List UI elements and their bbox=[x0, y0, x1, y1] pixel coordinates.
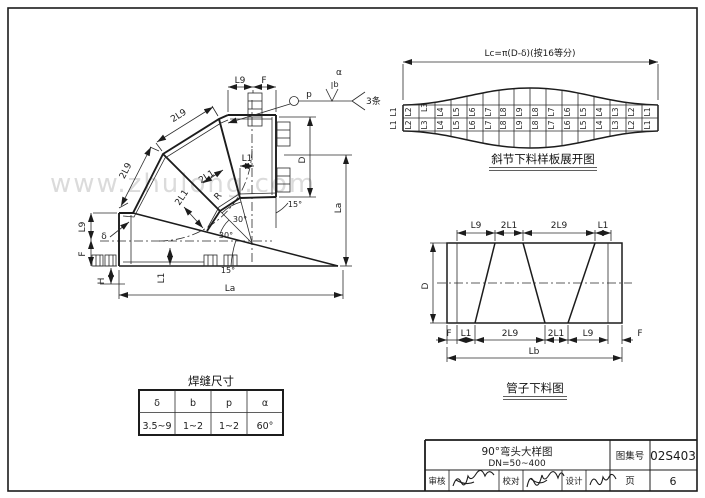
dev-label: L7 bbox=[484, 120, 493, 129]
dev-label: L9 bbox=[515, 120, 524, 129]
dim-l9-top: L9 bbox=[235, 76, 246, 86]
drawing-subtitle: DN=50~400 bbox=[488, 459, 546, 469]
dev-label: L4 bbox=[595, 120, 604, 129]
dev-label: L5 bbox=[579, 120, 588, 129]
dev-label: L4 bbox=[436, 107, 445, 116]
title-block: 90°弯头大样图 DN=50~400 图集号 02S403 审核 校对 设计 页… bbox=[425, 440, 697, 491]
blank-dim: F bbox=[637, 329, 642, 339]
blank-dim: L9 bbox=[583, 329, 594, 339]
blank-dim: 2L9 bbox=[502, 329, 519, 339]
dim-l1-top: L1 bbox=[242, 154, 253, 164]
dev-label: L7 bbox=[484, 107, 493, 116]
weld-table-header: δ bbox=[154, 398, 160, 409]
dim-delta: δ bbox=[101, 232, 107, 242]
dev-label: L1 bbox=[389, 107, 398, 116]
dev-label: L2 bbox=[404, 120, 413, 129]
blank-d: D bbox=[421, 282, 431, 289]
signature-proof-stroke bbox=[531, 479, 547, 483]
dim-la-right: La bbox=[334, 203, 344, 214]
weld-table-cell: 1~2 bbox=[183, 421, 203, 432]
dim-l1-bottom: L1 bbox=[157, 273, 167, 284]
weld-table-header: p bbox=[226, 398, 232, 409]
dev-label: L6 bbox=[563, 107, 572, 116]
dev-label: L1 bbox=[389, 120, 398, 129]
dev-label: L1 bbox=[643, 120, 652, 129]
angle-30-a: 30° bbox=[233, 215, 247, 224]
page-number: 6 bbox=[670, 475, 677, 488]
signatures bbox=[453, 470, 616, 487]
dev-label: L8 bbox=[499, 120, 508, 129]
weld-p-label: p bbox=[306, 90, 312, 100]
blank-lb: Lb bbox=[529, 347, 540, 357]
dev-label: L8 bbox=[531, 120, 540, 129]
blank-dim: L1 bbox=[598, 221, 609, 231]
weld-b-label: b bbox=[333, 80, 338, 89]
dev-label: L3 bbox=[611, 107, 620, 116]
blank-top-dims: L9 2L1 2L9 L1 bbox=[457, 221, 611, 241]
blank-dim: L1 bbox=[461, 329, 472, 339]
dev-label: L5 bbox=[579, 107, 588, 116]
dim-h: H bbox=[97, 278, 107, 285]
development-bottom-edge bbox=[403, 131, 658, 148]
development-top-edge bbox=[403, 88, 658, 105]
development-caption: 斜节下料样板展开图 bbox=[491, 152, 595, 166]
blank-caption: 管子下料图 bbox=[506, 381, 564, 395]
weld-table-header: b bbox=[190, 398, 196, 409]
drawing-canvas: www.zhulong.com bbox=[0, 0, 705, 498]
dev-label: L3 bbox=[420, 120, 429, 129]
dev-label: L6 bbox=[468, 107, 477, 116]
blank-dim: L9 bbox=[471, 221, 482, 231]
weld-table-cell: 1~2 bbox=[219, 421, 239, 432]
atlas-number-label: 图集号 bbox=[616, 450, 645, 462]
dev-label: L5 bbox=[452, 107, 461, 116]
page-label: 页 bbox=[625, 476, 635, 487]
design-label: 设计 bbox=[565, 476, 583, 487]
drawing-sheet: www.zhulong.com bbox=[0, 0, 705, 498]
dim-f-top: F bbox=[261, 76, 266, 86]
dev-label: L8 bbox=[499, 107, 508, 116]
dev-label: L6 bbox=[468, 120, 477, 129]
dim-f-left: F bbox=[78, 251, 88, 256]
dev-label: L4 bbox=[436, 120, 445, 129]
dim-2l9-b: 2L9 bbox=[169, 108, 188, 125]
dev-label: L7 bbox=[547, 107, 556, 116]
development-grid bbox=[403, 88, 658, 148]
drawing-title: 90°弯头大样图 bbox=[481, 445, 552, 458]
weld-alpha-label: α bbox=[336, 68, 342, 78]
weld-table: 焊缝尺寸 δ b p α 3.5~9 1~2 1~2 60° bbox=[139, 374, 283, 435]
development-length-formula: Lc=π(D-δ)(按16等分) bbox=[484, 47, 575, 59]
dev-label: L8 bbox=[531, 107, 540, 116]
weld-table-cell: 3.5~9 bbox=[142, 421, 171, 432]
development-figure: Lc=π(D-δ)(按16等分) L1 L2 bbox=[389, 47, 658, 171]
dev-label: L3 bbox=[611, 120, 620, 129]
angle-15-b: 15° bbox=[288, 200, 302, 209]
signature-design bbox=[590, 474, 616, 485]
blank-dim: 2L1 bbox=[548, 329, 564, 339]
signature-check-stroke bbox=[456, 480, 474, 484]
angle-15-a: 15° bbox=[221, 266, 235, 275]
proof-label: 校对 bbox=[502, 476, 520, 487]
weld-table-cell: 60° bbox=[257, 421, 274, 432]
dim-l9-left: L9 bbox=[78, 221, 88, 232]
blank-dim: 2L9 bbox=[551, 221, 568, 231]
dev-label: L7 bbox=[547, 120, 556, 129]
dim-la-bottom: La bbox=[225, 284, 236, 294]
blank-bottom-dims: F L1 2L9 2L1 L9 F bbox=[436, 325, 643, 344]
dev-label: L6 bbox=[563, 120, 572, 129]
dev-label: L4 bbox=[595, 107, 604, 116]
weld-table-header: α bbox=[262, 398, 268, 409]
signature-proof bbox=[527, 472, 564, 487]
signature-check bbox=[453, 470, 494, 486]
dim-d-elbow: D bbox=[298, 156, 308, 163]
check-label: 审核 bbox=[428, 476, 446, 487]
blank-dim: F bbox=[446, 329, 451, 339]
sheet-border bbox=[8, 8, 697, 491]
dev-label: L2 bbox=[627, 107, 636, 116]
blank-dim: 2L1 bbox=[501, 221, 517, 231]
pipe-blank-figure: L9 2L1 2L9 L1 F L1 2L9 2L1 L9 F bbox=[421, 221, 643, 400]
dev-label: L2 bbox=[404, 107, 413, 116]
atlas-number-value: 02S403 bbox=[650, 449, 696, 463]
weld-table-title: 焊缝尺寸 bbox=[188, 374, 234, 388]
dev-label: L9 bbox=[515, 107, 524, 116]
development-cell-labels: L1 L2 L3 L4 L5 L6 L7 L8 L9 L8 L7 L6 L5 L… bbox=[389, 103, 652, 130]
dev-label: L2 bbox=[627, 120, 636, 129]
weld-count-label: 3条 bbox=[366, 95, 381, 107]
dev-label: L5 bbox=[452, 120, 461, 129]
angle-30-b: 30° bbox=[219, 231, 233, 240]
dev-label: L1 bbox=[643, 107, 652, 116]
dev-label: L3 bbox=[420, 103, 429, 112]
